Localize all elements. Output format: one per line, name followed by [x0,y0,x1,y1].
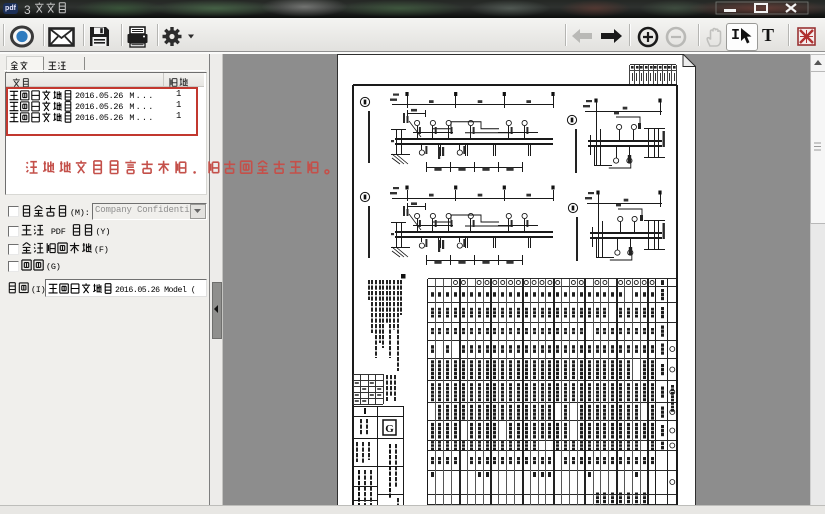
svg-text:G: G [385,423,394,435]
